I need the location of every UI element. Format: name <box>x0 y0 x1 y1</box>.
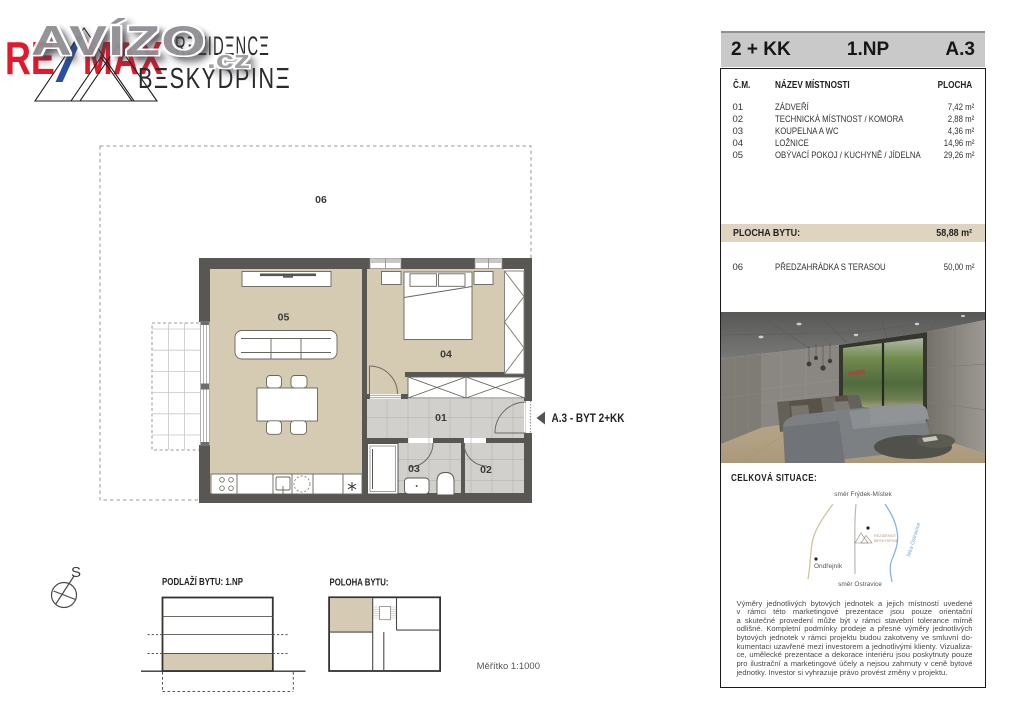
svg-text:A.3 - BYT 2+KK: A.3 - BYT 2+KK <box>552 413 626 425</box>
svg-text:02: 02 <box>480 464 492 476</box>
svg-text:06: 06 <box>315 194 327 206</box>
svg-text:PODLAŽÍ BYTU: 1.NP: PODLAŽÍ BYTU: 1.NP <box>162 575 243 588</box>
svg-text:05: 05 <box>278 312 290 324</box>
svg-text:03: 03 <box>408 463 420 475</box>
svg-text:S: S <box>71 564 81 581</box>
svg-text:REZIDENCE: REZIDENCE <box>874 534 896 538</box>
svg-text:směr Ostravice: směr Ostravice <box>838 581 882 588</box>
svg-text:směr Frýdek-Místek: směr Frýdek-Místek <box>834 491 892 498</box>
svg-text:Ondřejník: Ondřejník <box>814 563 843 570</box>
svg-text:01: 01 <box>435 412 447 424</box>
svg-text:POLOHA BYTU:: POLOHA BYTU: <box>330 577 389 589</box>
svg-text:BESKYDPINE: BESKYDPINE <box>874 539 899 543</box>
svg-text:Měřítko 1:1000: Měřítko 1:1000 <box>477 661 540 672</box>
svg-text:04: 04 <box>440 349 452 361</box>
svg-text:řeka Ostravice: řeka Ostravice <box>906 521 922 557</box>
